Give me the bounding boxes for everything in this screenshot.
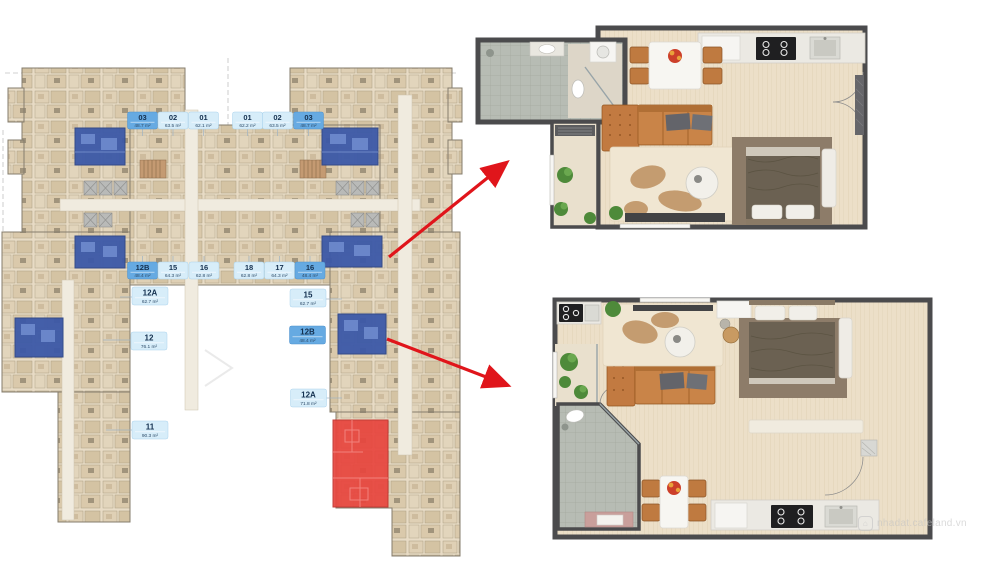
utility-counter (557, 302, 601, 324)
svg-text:15: 15 (169, 263, 177, 272)
balcony (553, 344, 597, 406)
svg-text:62.7 m²: 62.7 m² (142, 299, 159, 305)
side-table (723, 327, 739, 343)
svg-text:62.8 m²: 62.8 m² (196, 273, 213, 279)
corridor-right (398, 95, 412, 455)
svg-text:12A: 12A (143, 289, 158, 298)
plant (609, 206, 623, 220)
svg-text:12A: 12A (301, 391, 316, 400)
svg-text:17: 17 (275, 263, 283, 272)
svg-text:48.7 m²: 48.7 m² (300, 123, 317, 129)
dining-chair (642, 480, 660, 497)
svg-text:62.2 m²: 62.2 m² (239, 123, 256, 129)
svg-text:48.7 m²: 48.7 m² (134, 123, 151, 129)
dining-chair (642, 504, 660, 521)
svg-text:03: 03 (138, 113, 146, 122)
building-floor-plan: 03 48.7 m² 02 63.5 m² 01 62.1 m² 01 62.2… (2, 58, 462, 556)
highlight-unit-16-right (322, 236, 382, 267)
unit-label-03-right: 03 48.7 m² (294, 112, 324, 129)
svg-text:15: 15 (304, 291, 313, 300)
bench (822, 149, 836, 207)
coffee-table (686, 167, 718, 199)
plant (605, 301, 621, 317)
bench (839, 318, 852, 378)
building-bay (448, 140, 462, 174)
svg-text:16: 16 (200, 263, 208, 272)
bed (746, 147, 820, 225)
highlight-unit-red (333, 420, 388, 507)
kitchen (698, 33, 865, 63)
building-bay (448, 88, 462, 122)
svg-text:12B: 12B (136, 263, 150, 272)
stove-icon (756, 37, 796, 60)
svg-text:64.3 m²: 64.3 m² (165, 273, 182, 279)
highlight-unit-03-right (322, 128, 378, 165)
unit-label-16-mid: 16 62.8 m² (189, 262, 219, 279)
apartment-plan-bottom (553, 298, 930, 537)
unit-label-15-right: 15 62.7 m² (290, 289, 326, 307)
highlight-unit-12b-left (75, 236, 125, 268)
unit-label-18-mid: 18 62.8 m² (234, 262, 264, 279)
unit-label-12b-mid: 12B 48.4 m² (128, 262, 158, 279)
shower-drain (486, 49, 494, 57)
kitchen (711, 500, 879, 530)
svg-text:62.1 m²: 62.1 m² (195, 123, 212, 129)
svg-text:62.8 m²: 62.8 m² (241, 273, 258, 279)
dining-chair (630, 47, 649, 63)
highlight-unit-left-wing (15, 318, 63, 357)
svg-text:16: 16 (306, 263, 314, 272)
faint-chevron-watermark (205, 350, 232, 386)
dining-chair (688, 480, 706, 497)
balcony (550, 122, 598, 227)
svg-text:90.3 m²: 90.3 m² (142, 433, 159, 439)
coffee-table (665, 327, 695, 357)
svg-text:01: 01 (199, 113, 207, 122)
svg-text:48.4 m²: 48.4 m² (134, 273, 151, 279)
sink-icon (825, 506, 857, 527)
plant (559, 376, 571, 388)
highlight-unit-12b-right-wing (338, 314, 386, 354)
svg-text:03: 03 (304, 113, 312, 122)
unit-label-01-left: 01 62.1 m² (189, 112, 219, 129)
unit-label-03-left: 03 48.7 m² (128, 112, 158, 129)
tv-console (625, 213, 725, 222)
dining-chair (630, 68, 649, 84)
watermark-text: nhadat.cafeland.vn (877, 518, 967, 529)
apartment-plan-top (478, 28, 865, 228)
toilet (572, 80, 584, 98)
corridor-main (60, 199, 420, 211)
highlight-unit-03-left (75, 128, 125, 165)
unit-label-17-mid: 17 64.3 m² (265, 262, 295, 279)
console-shelf (749, 420, 863, 433)
ac-unit (555, 125, 595, 136)
kitchen-cabinet (715, 503, 747, 528)
desk (717, 301, 751, 318)
unit-label-01-right: 01 62.2 m² (233, 112, 263, 129)
sink-icon (810, 37, 840, 59)
floor-plan-graphic: 03 48.7 m² 02 63.5 m² 01 62.1 m² 01 62.2… (0, 0, 1000, 562)
home-icon: ⌂ (858, 516, 873, 531)
unit-label-12a-left: 12A 62.7 m² (132, 287, 168, 305)
svg-text:12B: 12B (300, 328, 315, 337)
dining-chair (688, 504, 706, 521)
svg-text:71.8 m²: 71.8 m² (300, 401, 317, 407)
dining-chair (703, 47, 722, 63)
unit-label-12b-right: 12B 48.4 m² (290, 326, 326, 344)
svg-text:01: 01 (243, 113, 251, 122)
unit-label-11-left: 11 90.3 m² (132, 421, 168, 439)
building-bay (8, 140, 24, 174)
window (620, 224, 690, 228)
svg-text:02: 02 (273, 113, 281, 122)
svg-text:11: 11 (146, 423, 155, 432)
watermark: ⌂ nhadat.cafeland.vn (858, 516, 967, 531)
stairs-left (140, 160, 166, 178)
window (640, 298, 710, 302)
plan-svg: 03 48.7 m² 02 63.5 m² 01 62.1 m² 01 62.2… (0, 0, 1000, 562)
unit-label-02-left: 02 63.5 m² (158, 112, 188, 129)
svg-text:02: 02 (169, 113, 177, 122)
corridor-left (185, 110, 198, 410)
living-rug (603, 304, 723, 366)
svg-text:63.5 m²: 63.5 m² (165, 123, 182, 129)
plant (584, 212, 596, 224)
unit-label-12-left: 12 76.1 m² (131, 332, 167, 350)
sofa (602, 105, 713, 151)
svg-text:18: 18 (245, 263, 253, 272)
building-bay (8, 88, 24, 122)
corridor-left-wing (62, 280, 74, 520)
bed-area (732, 137, 836, 225)
dining-chair (703, 68, 722, 84)
svg-text:62.7 m²: 62.7 m² (300, 301, 317, 307)
svg-text:63.5 m²: 63.5 m² (269, 123, 286, 129)
unit-label-15-mid: 15 64.3 m² (158, 262, 188, 279)
svg-text:48.4 m²: 48.4 m² (299, 338, 316, 344)
unit-label-12a-right: 12A 71.8 m² (291, 389, 327, 407)
stove-icon (771, 505, 813, 528)
wall-shelf (633, 305, 713, 311)
svg-text:48.4 m²: 48.4 m² (302, 273, 319, 279)
shower-drain (562, 424, 569, 431)
svg-text:76.1 m²: 76.1 m² (141, 344, 158, 350)
unit-label-02-right: 02 63.5 m² (263, 112, 293, 129)
svg-text:12: 12 (145, 334, 154, 343)
svg-text:64.3 m²: 64.3 m² (271, 273, 288, 279)
unit-label-16-mid-right: 16 48.4 m² (295, 262, 325, 279)
